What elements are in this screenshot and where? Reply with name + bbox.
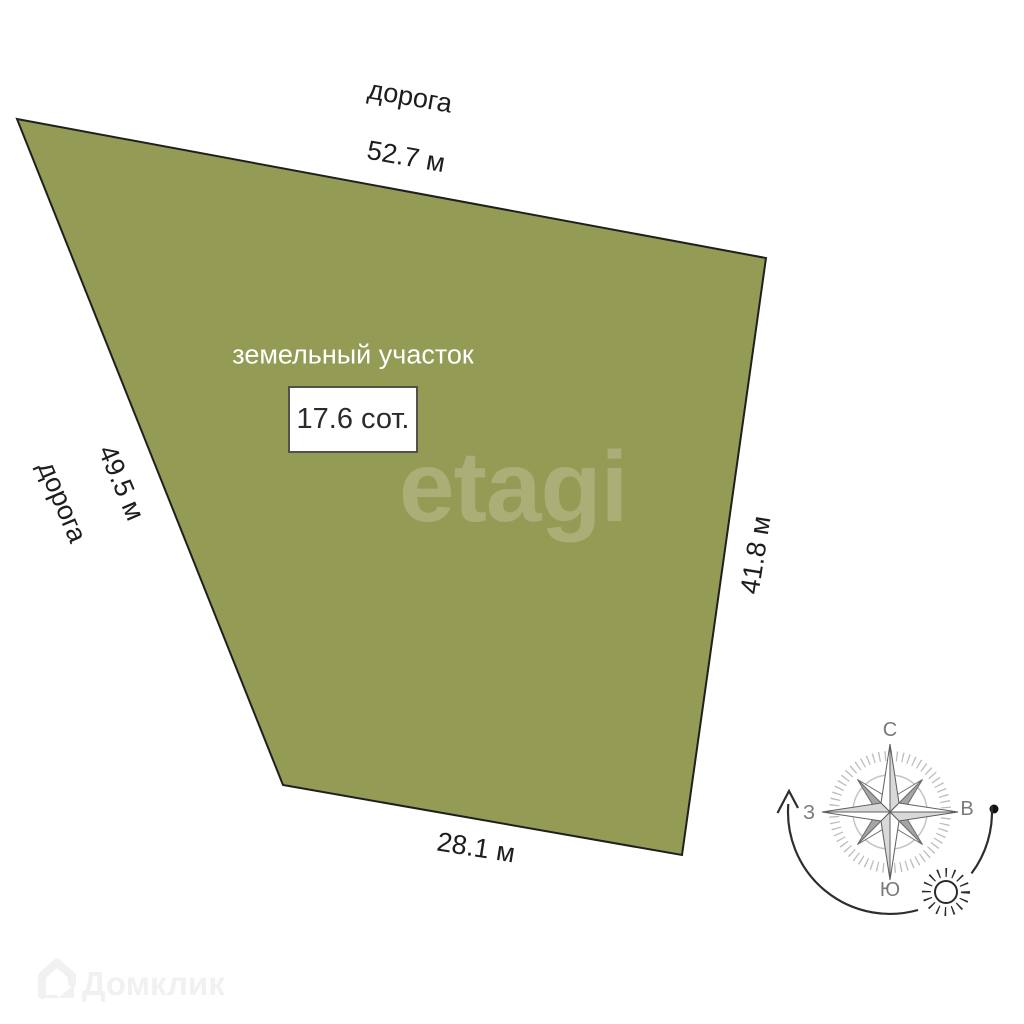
compass-west-label: З xyxy=(803,802,815,824)
home-icon xyxy=(42,963,74,999)
compass-rose-icon: С Ю З В xyxy=(803,719,974,901)
domclick-watermark: Домклик xyxy=(82,965,225,1003)
land-plot-scheme: С Ю З В дорога 52.7 м дорога 49.5 м 41.8… xyxy=(0,0,1024,1024)
sun-icon xyxy=(927,873,966,912)
parcel-area-value: 17.6 сот. xyxy=(297,403,410,436)
compass-east-label: В xyxy=(960,798,973,820)
compass-south-label: Ю xyxy=(880,879,900,901)
etagi-watermark: etagi xyxy=(399,437,627,537)
parcel-title: земельный участок xyxy=(232,340,473,371)
compass-cardinal-points xyxy=(822,744,958,880)
compass-north-label: С xyxy=(883,719,897,741)
